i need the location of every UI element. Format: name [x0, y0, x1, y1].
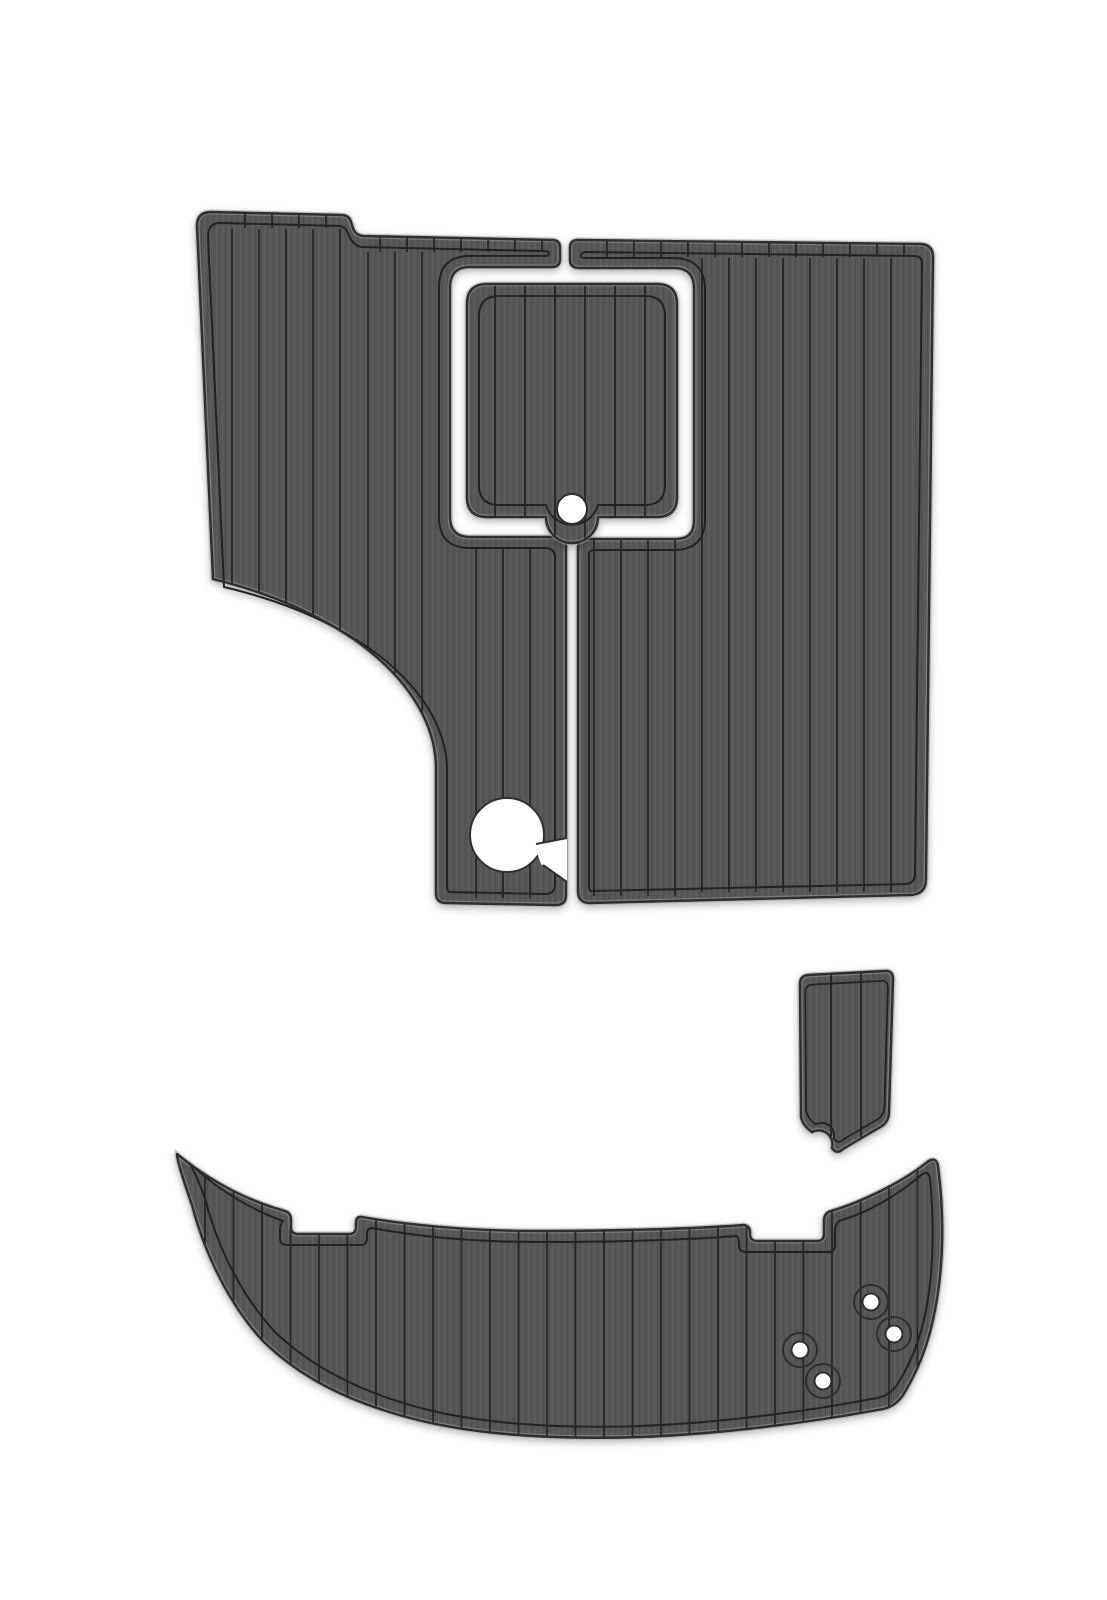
cup-hole	[470, 798, 544, 872]
bolt-hole-2	[886, 1326, 903, 1343]
bolt-hole-4	[815, 1373, 832, 1390]
decking-pad-set-image	[0, 0, 1107, 1600]
transom-wedge-pad-surface	[800, 971, 893, 1152]
bolt-hole-1	[863, 1294, 880, 1311]
product-photo	[0, 0, 1107, 1600]
center-hatch-pad	[467, 284, 677, 543]
decking-pad-set-svg	[0, 0, 1107, 1600]
bolt-hole-3	[792, 1342, 809, 1359]
finger-pull-hole	[557, 494, 587, 524]
